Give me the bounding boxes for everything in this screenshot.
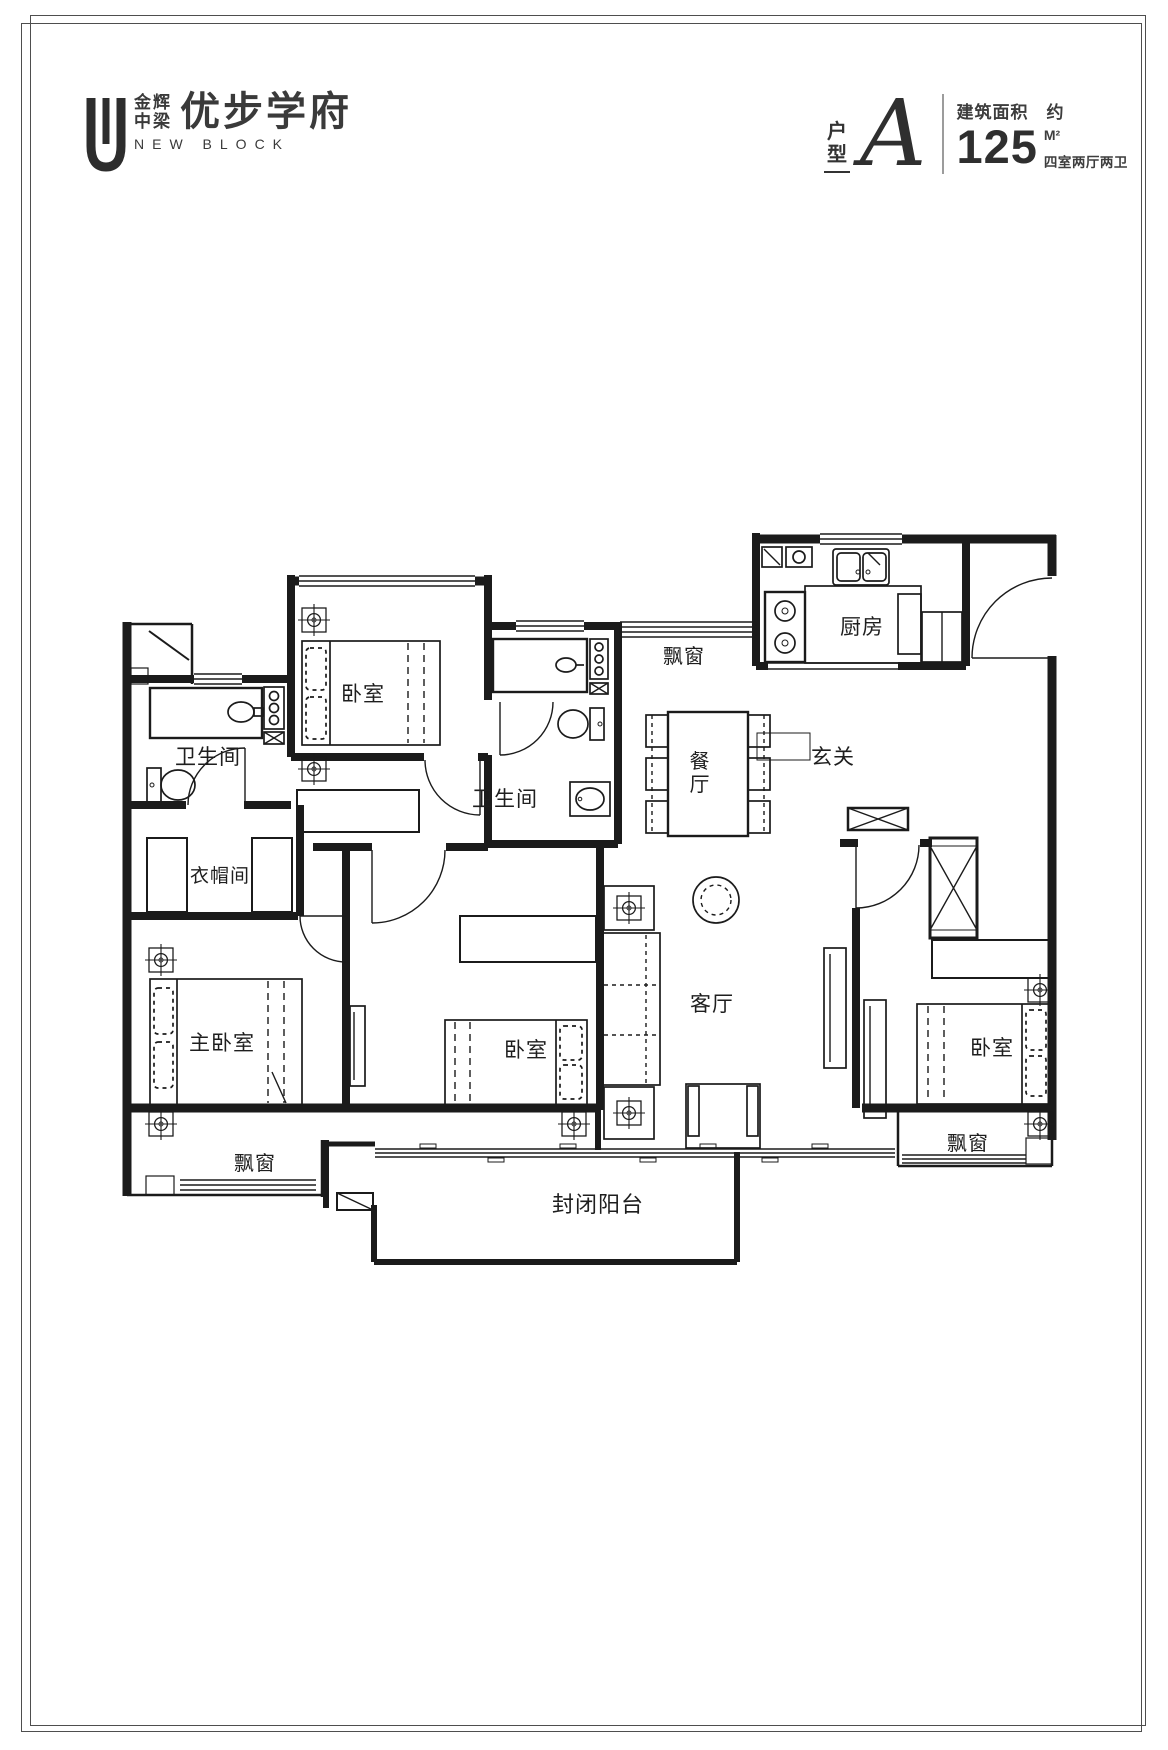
room-label-bathroom-middle: 卫生间 [472, 788, 538, 811]
bathroom-north-fixtures [147, 687, 284, 802]
floorplan-sheet: 金辉 中梁 优步学府 NEW BLOCK 户 型 A 建筑面积 约 125 M² [0, 0, 1168, 1750]
room-label-balcony: 封闭阳台 [552, 1192, 644, 1217]
room-label-bedroom-middle: 卧室 [504, 1039, 548, 1062]
room-label-cloakroom: 衣帽间 [190, 865, 250, 887]
room-label-bay-window-top: 飘窗 [663, 645, 705, 668]
room-label-bay-window-se: 飘窗 [947, 1132, 989, 1155]
balcony-walls [326, 1140, 737, 1262]
bay-window-sw [127, 1140, 322, 1197]
room-label-bathroom-north: 卫生间 [175, 746, 241, 769]
bed-middle [445, 1020, 587, 1106]
room-label-bedroom-east: 卧室 [970, 1037, 1014, 1060]
room-label-dining: 餐厅 [690, 750, 711, 796]
shaft-small [848, 808, 908, 830]
room-label-bedroom-north: 卧室 [341, 683, 385, 706]
room-label-bay-window-sw: 飘窗 [234, 1152, 276, 1175]
floorplan-drawing: 卫生间卧室卫生间飘窗厨房玄关餐厅衣帽间主卧室卧室客厅卧室飘窗飘窗封闭阳台 [0, 0, 1168, 1750]
room-label-kitchen: 厨房 [840, 616, 884, 639]
kitchen-fixtures [762, 547, 962, 663]
shaft-large [930, 838, 977, 938]
room-label-living-room: 客厅 [690, 993, 734, 1016]
room-label-master-bedroom: 主卧室 [189, 1032, 255, 1055]
room-label-foyer: 玄关 [811, 746, 855, 769]
